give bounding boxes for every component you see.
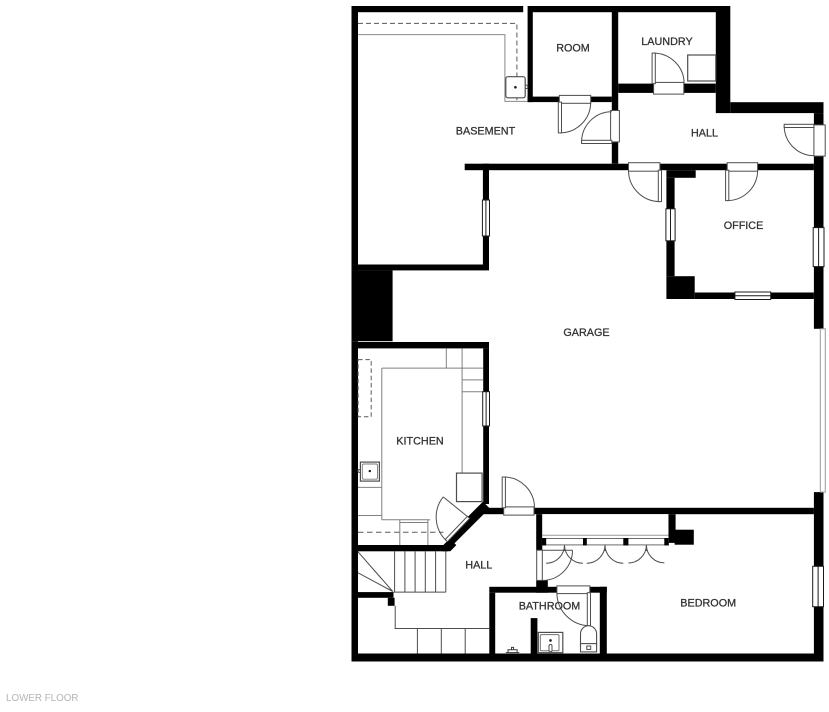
svg-text:OFFICE: OFFICE [724, 220, 764, 232]
svg-text:LOWER FLOOR: LOWER FLOOR [6, 693, 78, 704]
svg-text:BASEMENT: BASEMENT [456, 126, 516, 138]
svg-text:BEDROOM: BEDROOM [680, 598, 736, 610]
svg-text:HALL: HALL [691, 128, 718, 140]
svg-text:BATHROOM: BATHROOM [519, 601, 581, 613]
svg-text:LAUNDRY: LAUNDRY [641, 36, 692, 48]
svg-text:KITCHEN: KITCHEN [396, 436, 443, 448]
svg-text:HALL: HALL [465, 560, 492, 572]
svg-text:ROOM: ROOM [556, 43, 590, 55]
svg-text:GARAGE: GARAGE [563, 327, 609, 339]
